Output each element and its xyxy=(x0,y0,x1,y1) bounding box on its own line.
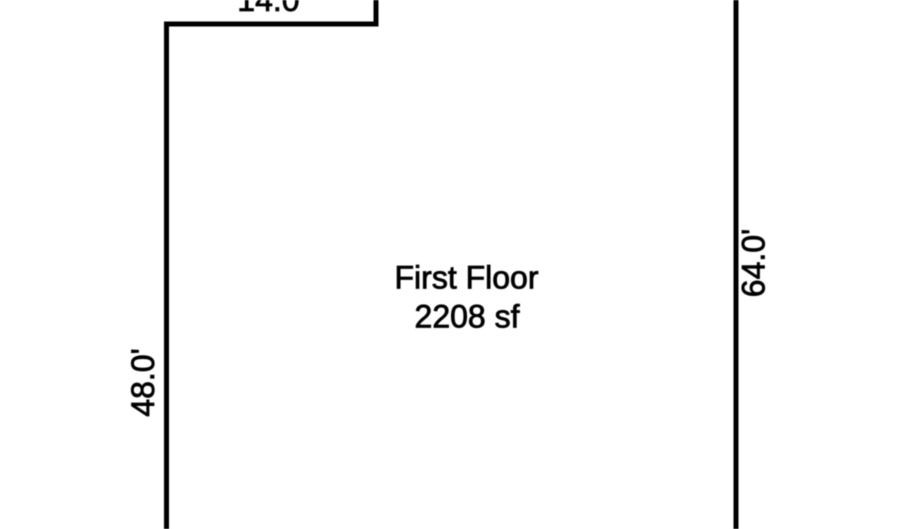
svg-text:64.0': 64.0' xyxy=(736,229,772,297)
svg-text:48.0': 48.0' xyxy=(125,348,161,416)
svg-text:First Floor: First Floor xyxy=(395,260,539,296)
svg-text:2208 sf: 2208 sf xyxy=(415,299,520,335)
svg-text:14.0': 14.0' xyxy=(237,0,305,18)
